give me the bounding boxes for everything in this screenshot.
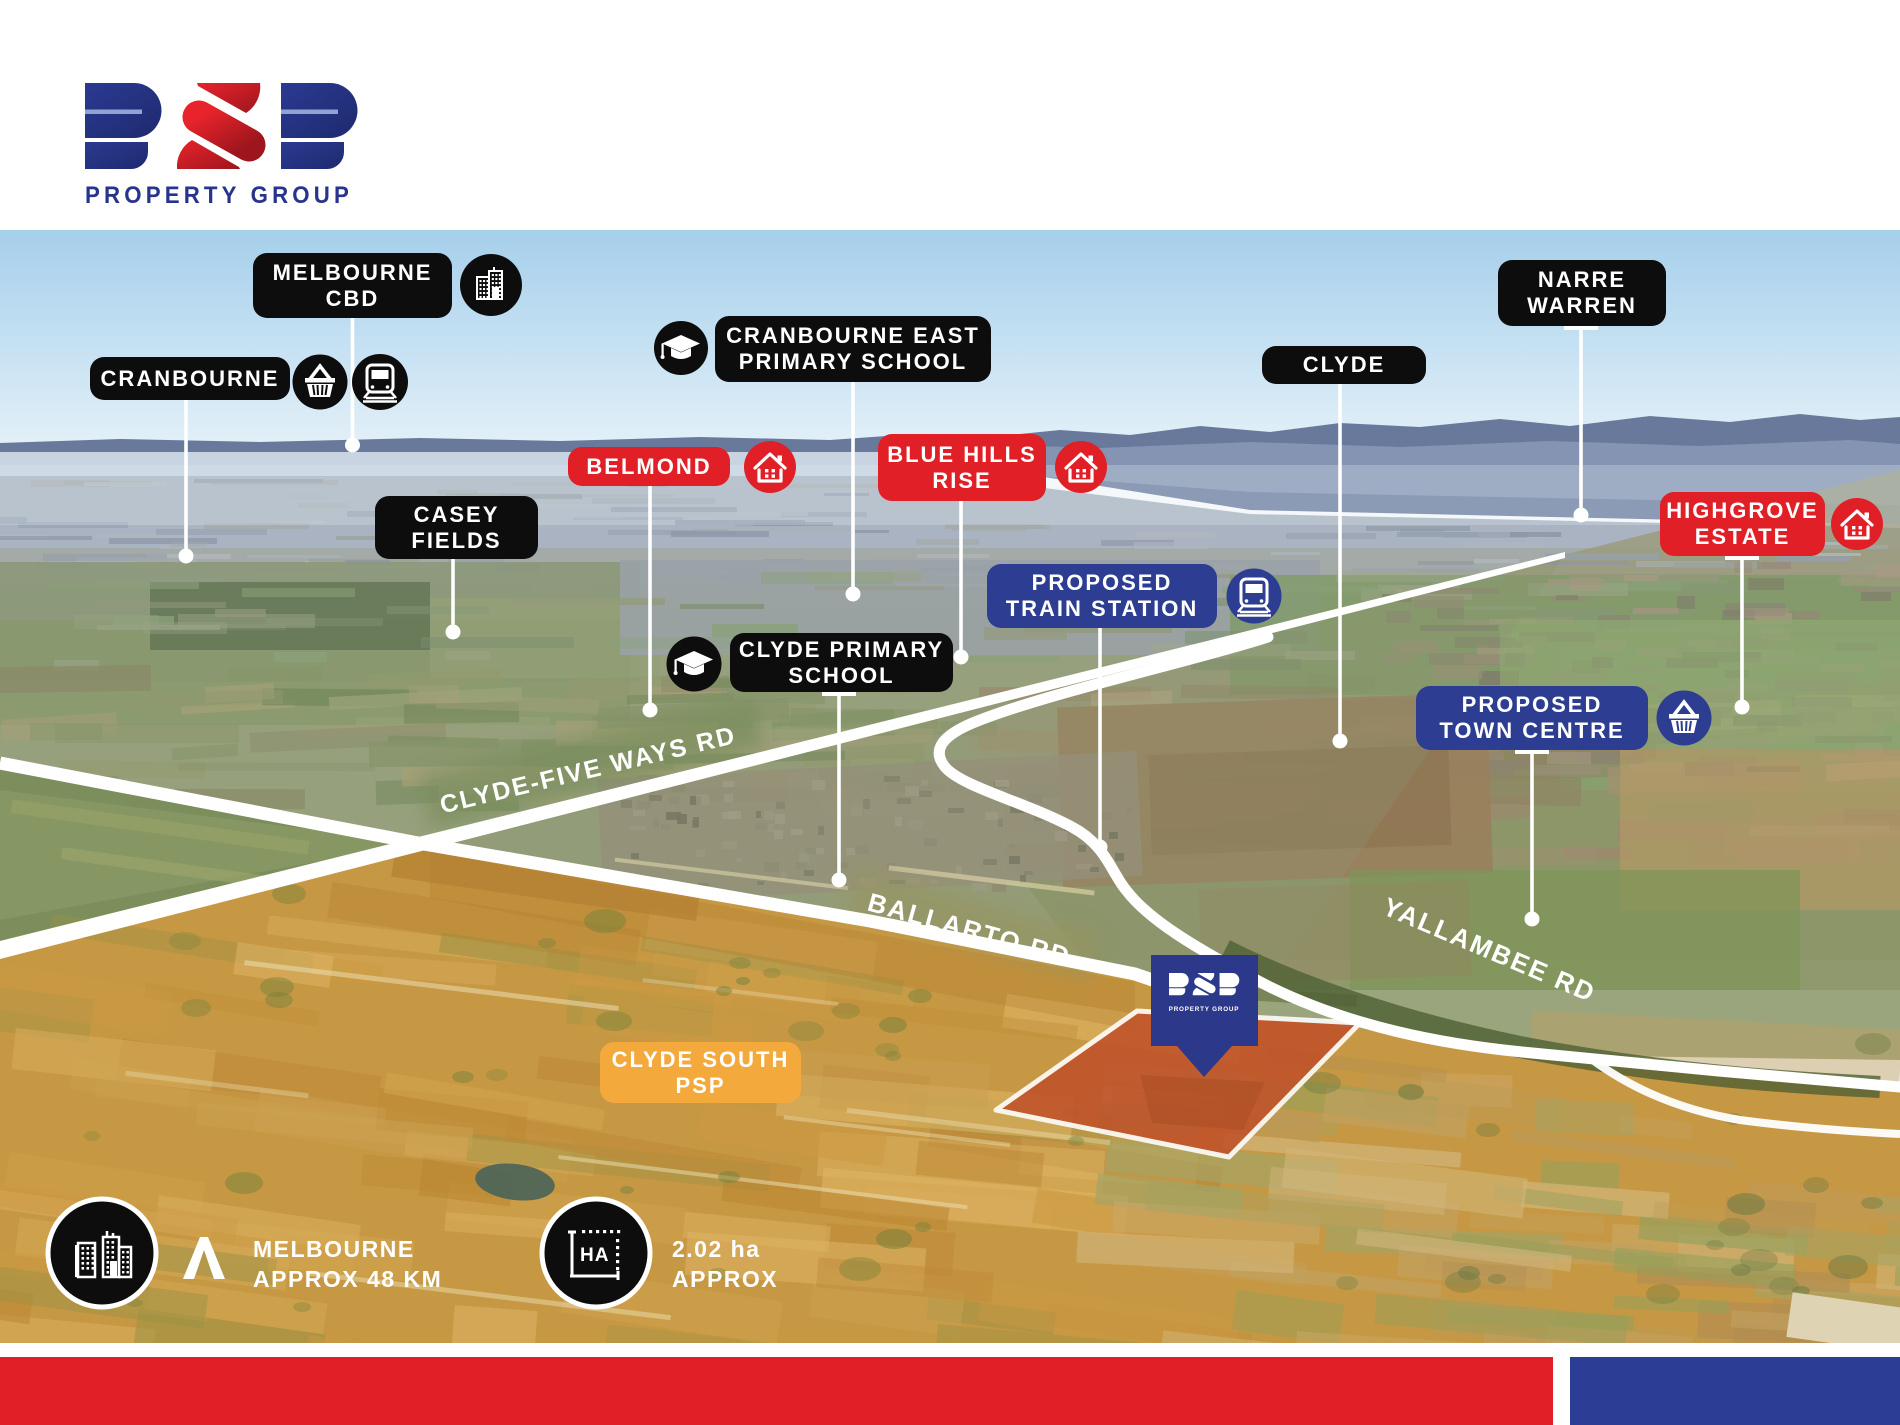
svg-text:PROPERTY GROUP: PROPERTY GROUP: [85, 182, 353, 209]
svg-text:HA: HA: [580, 1245, 609, 1266]
svg-text:PROPERTY GROUP: PROPERTY GROUP: [1169, 1006, 1240, 1013]
